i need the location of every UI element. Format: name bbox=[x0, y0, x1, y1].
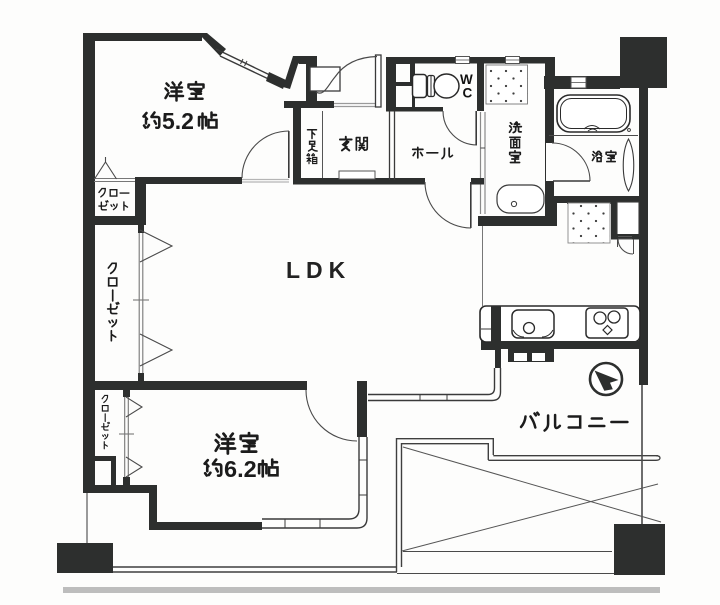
svg-text:LDK: LDK bbox=[286, 257, 351, 283]
svg-text:6.2: 6.2 bbox=[224, 456, 257, 482]
svg-text:5.2: 5.2 bbox=[162, 108, 194, 134]
svg-text:C: C bbox=[463, 86, 473, 101]
